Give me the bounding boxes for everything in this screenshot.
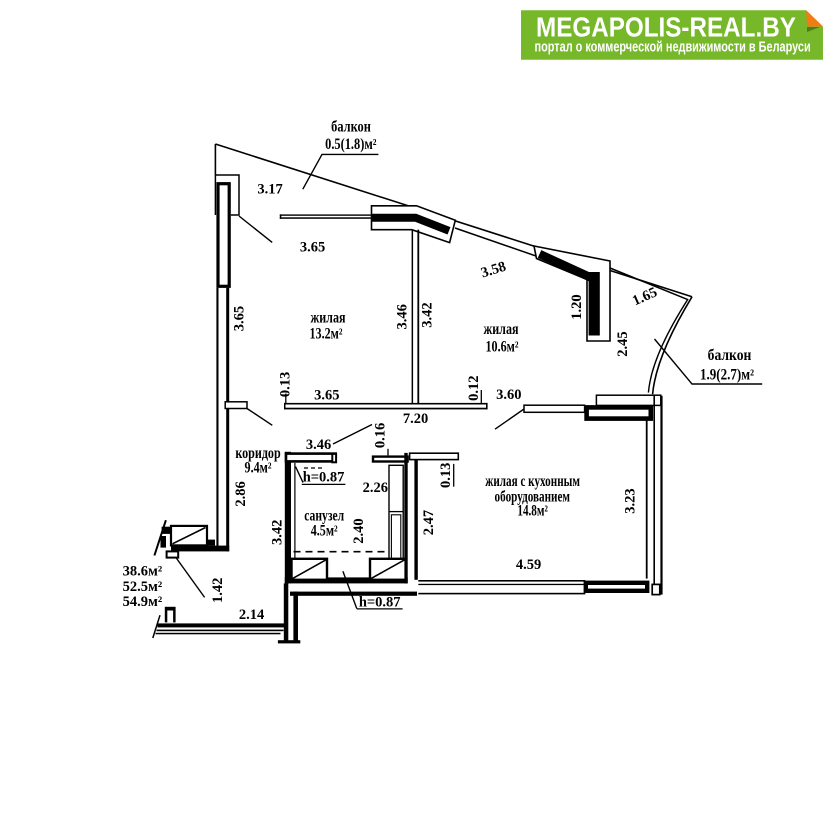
- svg-text:3.65: 3.65: [300, 240, 325, 256]
- svg-text:0.13: 0.13: [438, 463, 454, 488]
- svg-text:3.42: 3.42: [419, 302, 435, 327]
- svg-text:1.20: 1.20: [569, 294, 585, 319]
- svg-text:7.20: 7.20: [403, 411, 428, 427]
- svg-text:2.40: 2.40: [351, 518, 367, 543]
- svg-text:балкон: балкон: [708, 347, 752, 364]
- svg-text:2.26: 2.26: [363, 480, 388, 496]
- svg-text:0.12: 0.12: [466, 376, 482, 401]
- svg-text:1.9(2.7)м²: 1.9(2.7)м²: [700, 367, 754, 384]
- svg-text:балкон: балкон: [331, 118, 371, 136]
- svg-text:2.47: 2.47: [421, 510, 437, 535]
- svg-text:0.5(1.8)м²: 0.5(1.8)м²: [325, 136, 376, 154]
- svg-text:0.13: 0.13: [277, 372, 293, 397]
- svg-text:14.8м²: 14.8м²: [517, 502, 547, 519]
- svg-text:4.5м²: 4.5м²: [311, 523, 338, 540]
- svg-text:санузел: санузел: [304, 507, 344, 524]
- svg-text:52.5м²: 52.5м²: [123, 579, 163, 595]
- svg-text:3.42: 3.42: [270, 520, 286, 545]
- svg-text:h=0.87: h=0.87: [359, 594, 401, 610]
- svg-text:0.16: 0.16: [373, 423, 389, 448]
- svg-text:h=0.87: h=0.87: [303, 469, 345, 485]
- svg-text:13.2м²: 13.2м²: [310, 326, 343, 343]
- svg-text:жилая: жилая: [310, 310, 345, 327]
- svg-text:10.6м²: 10.6м²: [486, 339, 519, 356]
- svg-text:3.46: 3.46: [394, 304, 410, 329]
- svg-text:жилая: жилая: [483, 322, 518, 339]
- svg-text:9.4м²: 9.4м²: [245, 460, 272, 477]
- svg-text:портал о коммерческой недвижим: портал о коммерческой недвижимости в Бел…: [535, 38, 811, 55]
- svg-text:38.6м²: 38.6м²: [123, 564, 163, 580]
- svg-text:3.65: 3.65: [232, 306, 248, 331]
- svg-text:2.14: 2.14: [239, 607, 264, 623]
- svg-text:2.86: 2.86: [233, 481, 249, 506]
- svg-text:3.17: 3.17: [257, 181, 282, 197]
- svg-text:4.59: 4.59: [516, 557, 541, 573]
- svg-text:1.42: 1.42: [210, 578, 226, 603]
- svg-text:3.46: 3.46: [306, 437, 331, 453]
- svg-text:54.9м²: 54.9м²: [123, 594, 163, 610]
- svg-text:3.23: 3.23: [623, 488, 639, 513]
- svg-text:3.65: 3.65: [314, 388, 339, 404]
- svg-text:3.60: 3.60: [496, 387, 521, 403]
- svg-text:2.45: 2.45: [615, 331, 631, 356]
